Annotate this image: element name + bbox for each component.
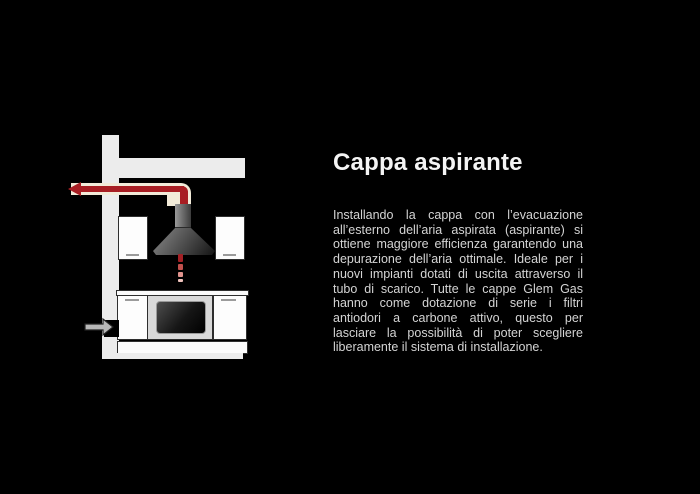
suction-dash <box>178 264 183 270</box>
exhaust-arrow-head-icon <box>68 182 81 196</box>
soffit <box>102 158 245 178</box>
text-column: Cappa aspirante Installando la cappa con… <box>333 149 583 355</box>
hood-chimney <box>175 204 191 229</box>
cabinet-handle <box>223 254 236 256</box>
brochure-slide: Cappa aspirante Installando la cappa con… <box>0 0 700 494</box>
suction-dash <box>178 272 183 277</box>
hood-canopy <box>153 228 215 255</box>
oven <box>147 295 213 340</box>
floor-strip <box>102 353 243 359</box>
page-title: Cappa aspirante <box>333 149 583 177</box>
cabinet-handle <box>221 299 236 301</box>
wall-cabinet-right <box>215 216 245 260</box>
base-cabinet-left <box>117 295 148 340</box>
cabinet-handle <box>126 254 139 256</box>
air-intake-arrow-icon <box>83 317 115 337</box>
oven-door-glass <box>156 301 206 334</box>
exhaust-arrow-shaft <box>80 186 184 192</box>
cabinet-handle <box>125 299 139 301</box>
suction-dash <box>178 279 183 282</box>
base-cabinet-right <box>213 295 247 340</box>
suction-dash <box>178 254 183 262</box>
wall-cabinet-left <box>118 216 148 260</box>
body-paragraph: Installando la cappa con l’evacuazione a… <box>333 208 583 355</box>
